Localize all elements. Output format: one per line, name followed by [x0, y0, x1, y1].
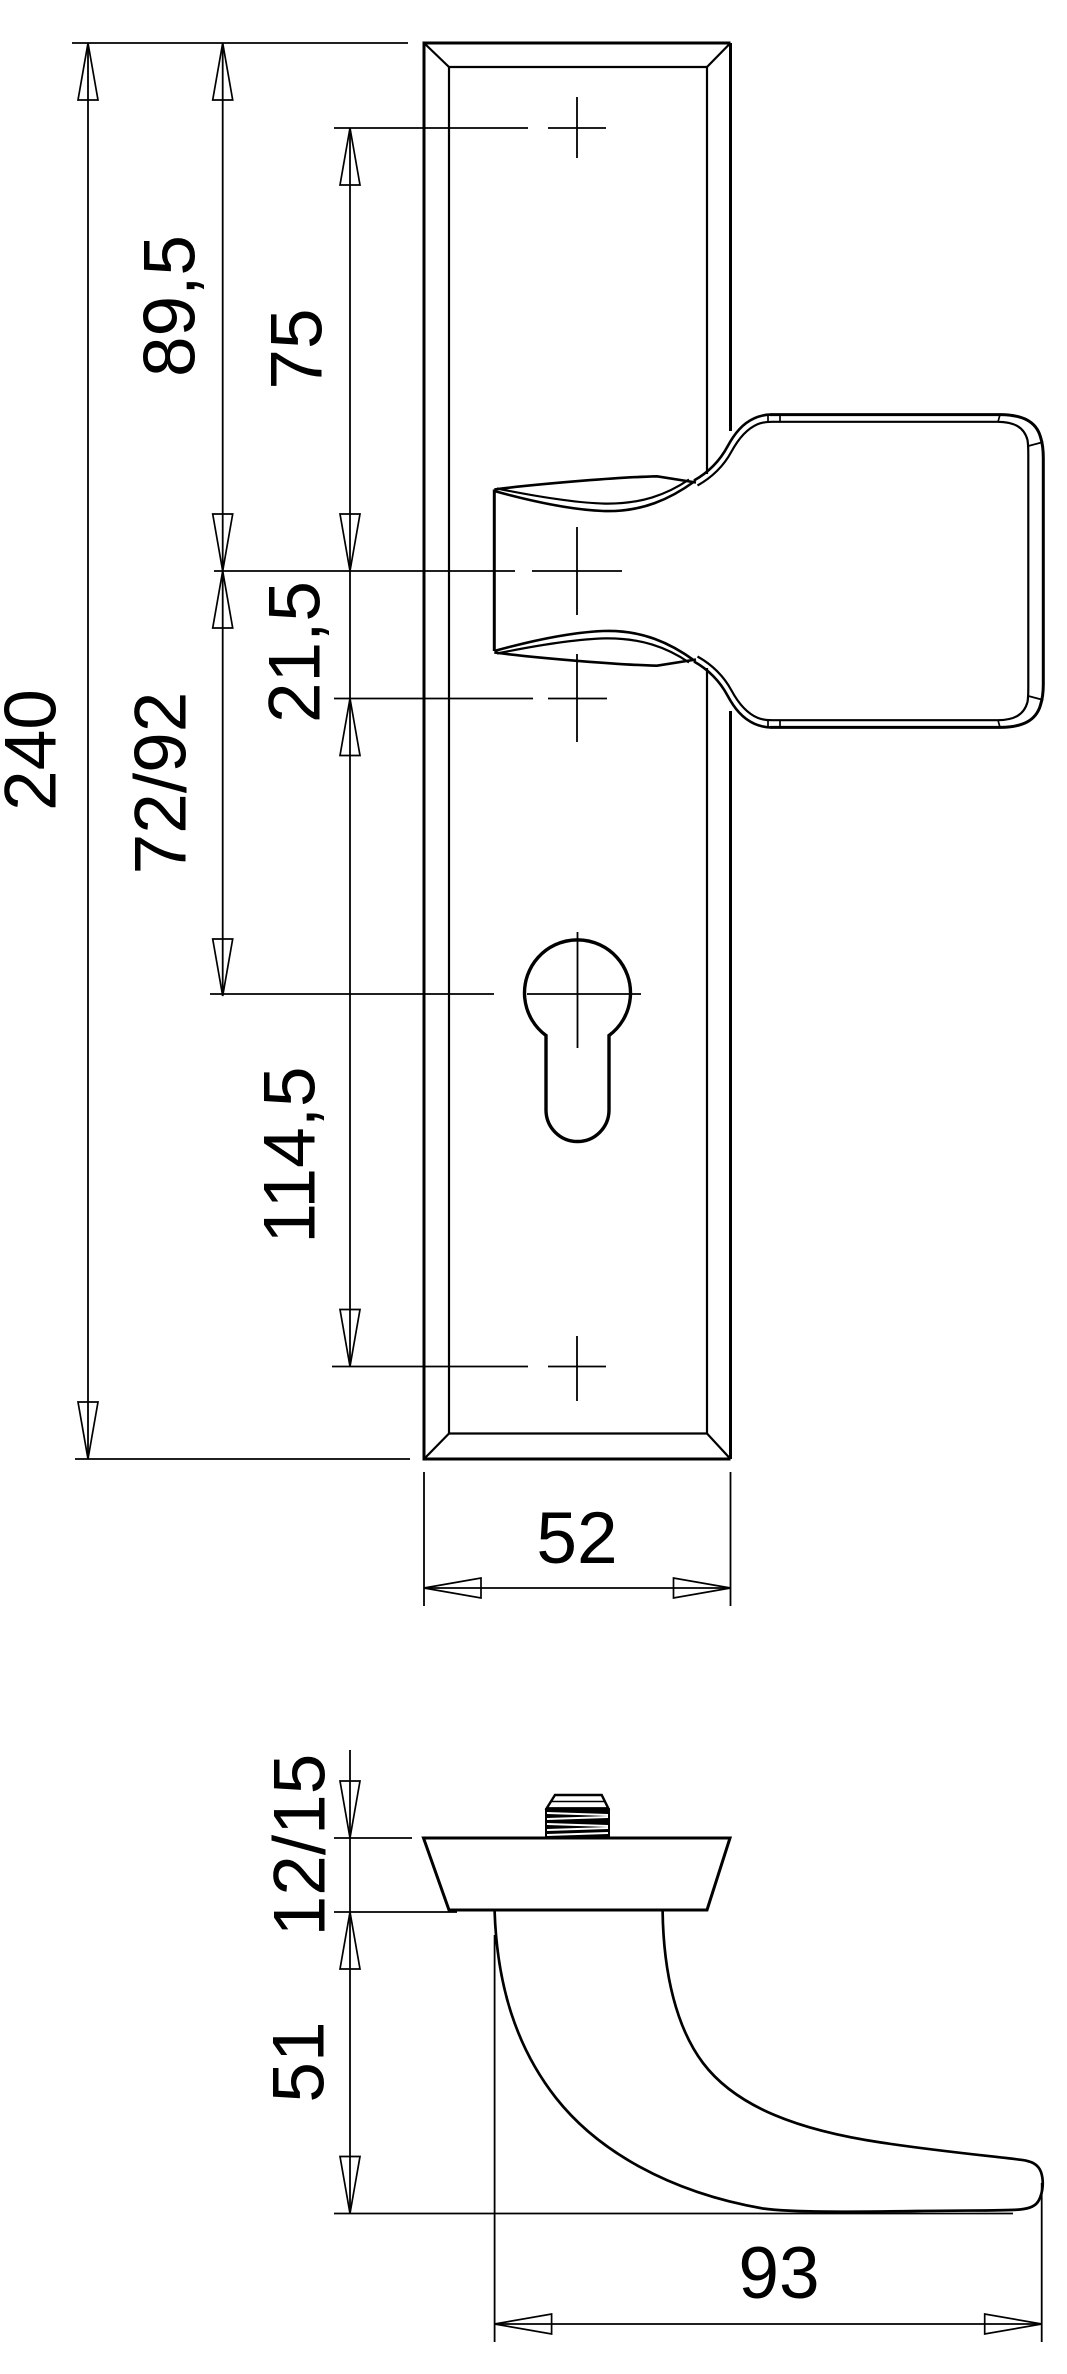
bottom-screw-hole-marker — [548, 1336, 606, 1401]
dimension-label-72-92: 72/92 — [121, 692, 202, 875]
dimension-label-52: 52 — [536, 1498, 617, 1579]
backplate-outer-edge — [424, 43, 731, 1459]
backplate-section — [424, 1838, 731, 1910]
grip-segment-ticks — [768, 415, 1043, 728]
backplate-outline — [424, 43, 731, 1459]
dimension-overall-height: 240 — [0, 43, 98, 1459]
top-screw-hole-marker — [548, 97, 606, 158]
door-handle-technical-drawing: 240 89,5 72/92 75 21,5 114,5 52 — [0, 0, 1067, 2374]
bevel-corner-bottom-left — [424, 1434, 449, 1460]
extension-lines-side — [334, 1838, 1042, 2342]
dimension-label-51: 51 — [259, 2021, 340, 2102]
handle-hub-marker — [532, 527, 622, 615]
upper-wing-top-edge — [494, 476, 696, 489]
dimension-hole-chain: 75 21,5 114,5 — [250, 128, 361, 1367]
technical-drawing-page: 240 89,5 72/92 75 21,5 114,5 52 — [0, 0, 1067, 2374]
dimension-plate-thickness: 12/15 — [260, 1750, 361, 2214]
plate-cross-section — [424, 1838, 731, 1910]
dimension-label-12-15: 12/15 — [260, 1754, 341, 1937]
bevel-corner-top-left — [424, 43, 449, 67]
lower-wing-bottom-edge — [494, 653, 696, 666]
euro-cylinder-keyhole — [525, 932, 641, 1142]
backplate-inner-bevel — [449, 67, 707, 1434]
bevel-corner-bottom-right — [707, 1434, 731, 1460]
mid-screw-hole-marker — [548, 654, 607, 742]
dimension-label-75: 75 — [257, 308, 338, 389]
dimension-top-to-handle: 89,5 72/92 — [121, 43, 233, 996]
dimension-label-93: 93 — [738, 2233, 819, 2314]
grip-inner-outline — [772, 422, 1028, 720]
spindle-screw — [545, 1795, 610, 1838]
dimension-label-240: 240 — [0, 689, 72, 811]
dimension-label-114-5: 114,5 — [250, 1066, 331, 1243]
lever-profile-outline — [495, 1911, 1043, 2212]
bevel-corner-top-right — [707, 43, 731, 67]
dimension-handle-drop: 51 — [259, 2021, 361, 2213]
upper-neck-scurve-inner — [698, 422, 773, 486]
grip-outer-outline — [770, 415, 1043, 728]
lower-neck-scurve-inner — [698, 657, 773, 721]
lever-handle-profile — [495, 1911, 1043, 2212]
dimension-plate-width: 52 — [424, 1498, 731, 1598]
front-view: 240 89,5 72/92 75 21,5 114,5 52 — [0, 43, 1043, 1606]
dimension-label-21-5: 21,5 — [255, 581, 336, 723]
side-view: 12/15 51 93 — [259, 1750, 1043, 2342]
dimension-handle-length: 93 — [495, 2233, 1042, 2334]
dimension-label-89-5: 89,5 — [130, 235, 211, 377]
